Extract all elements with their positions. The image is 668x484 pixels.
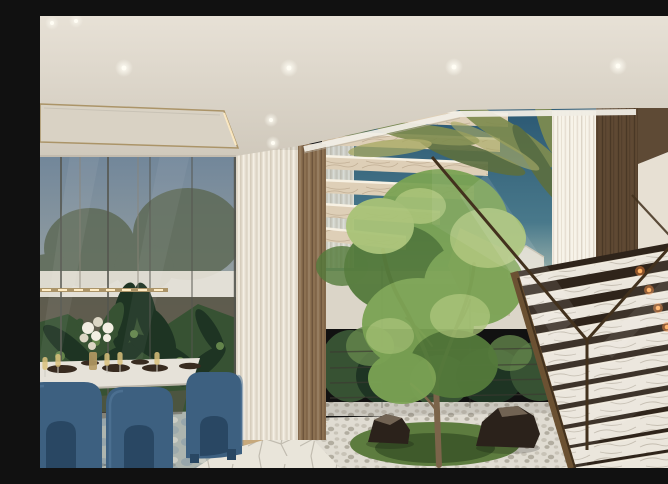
scene-root: Photorealistic rendering of a double-hei… <box>40 16 668 468</box>
wood-slat-column <box>298 144 326 440</box>
curtain-left <box>236 144 298 440</box>
dining-chair <box>106 387 173 468</box>
dining-chair <box>40 382 102 468</box>
render-canvas <box>40 16 668 468</box>
dining-chair <box>186 372 242 463</box>
dropped-ceiling-panel <box>40 104 238 148</box>
